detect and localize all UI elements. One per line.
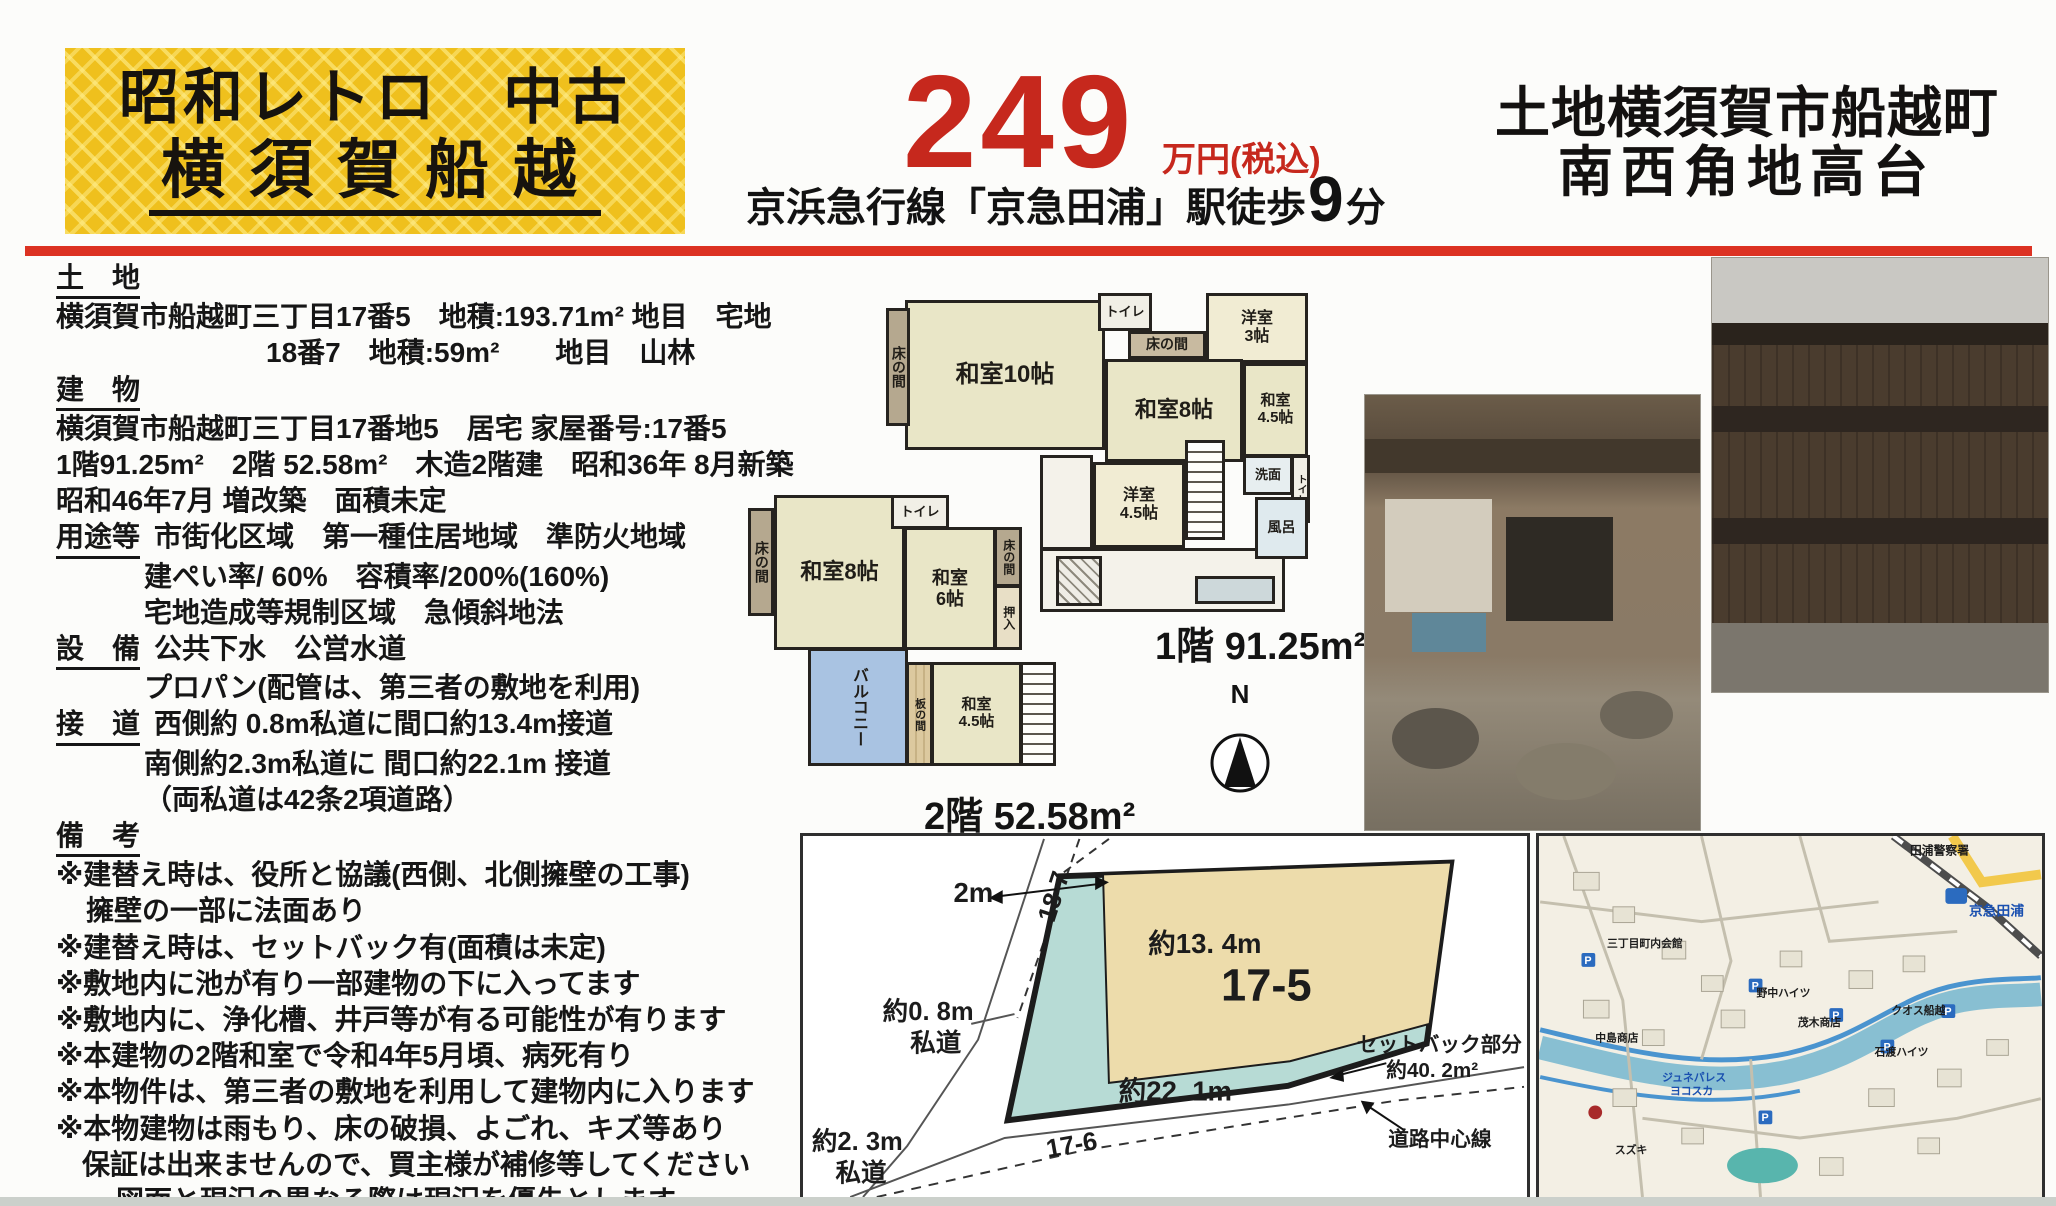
- detail-heading: 土 地: [56, 260, 140, 299]
- detail-text: （両私道は42条2項道路）: [144, 784, 471, 815]
- banner-line1: 昭和レトロ 中古: [119, 66, 631, 129]
- detail-line: ※本物建物は雨もり、床の破損、よごれ、キズ等あり: [56, 1111, 846, 1147]
- building: [1613, 1089, 1637, 1107]
- property-photo-exterior-garden: [1365, 395, 1700, 830]
- detail-text: 市街化区域 第一種住居地域 準防火地域: [154, 521, 686, 552]
- leader-line: [971, 1014, 1014, 1024]
- parking-p: P: [1752, 980, 1759, 992]
- parcel-boundary: [1064, 839, 1109, 872]
- room-washitsu-6: 和室 6帖: [904, 527, 996, 650]
- detail-text: プロパン(配管は、第三者の敷地を利用): [144, 672, 640, 703]
- access-minutes-unit: 分: [1346, 175, 1386, 233]
- poi-label: ジュネパレス: [1662, 1071, 1726, 1084]
- photo-rock: [1516, 743, 1617, 800]
- room-toilet: トイレ: [891, 495, 949, 529]
- detail-heading: 設 備: [56, 631, 140, 670]
- detail-text: ※敷地内に池が有り一部建物の下に入ってます: [56, 968, 640, 999]
- poi-label: 田浦警察署: [1910, 844, 1969, 858]
- room-kitchen-counter: [1195, 576, 1275, 604]
- station-marker: [1945, 888, 1967, 904]
- floor2-area-label: 2階 52.58m²: [924, 785, 1135, 840]
- detail-text: 擁壁の一部に法面あり: [86, 895, 366, 926]
- photo-wood-siding: [1712, 345, 2048, 623]
- west-road-width: 約0. 8m: [883, 997, 974, 1026]
- detail-heading: 用途等: [56, 519, 140, 558]
- parking-p: P: [1832, 1010, 1839, 1022]
- compass-north-label: N: [1205, 680, 1275, 708]
- detail-heading: 備 考: [56, 818, 140, 857]
- detail-line: 建ぺい率/ 60% 容積率/200%(160%): [56, 559, 846, 595]
- divider-rule: [25, 246, 2032, 256]
- detail-text: ※敷地内に、浄化槽、井戸等が有る可能性が有ります: [56, 1004, 726, 1035]
- room-yoshitsu-45: 洋室 4.5帖: [1093, 462, 1185, 548]
- west-road-label: 私道: [910, 1028, 962, 1057]
- area-map: 田浦警察署京急田浦三丁目町内会館野中ハイツ茂木商店クオス船越石渡ハイツ中島商店ジ…: [1536, 833, 2045, 1200]
- room-bath: 風呂: [1255, 497, 1308, 559]
- compass-icon: [1205, 708, 1275, 796]
- detail-text: 建ぺい率/ 60% 容積率/200%(160%): [144, 561, 609, 592]
- photo-balcony-band: [1712, 518, 2048, 544]
- detail-line: ※本建物の2階和室で令和4年5月頃、病死有り: [56, 1038, 846, 1074]
- south-road-label: 私道: [835, 1158, 887, 1187]
- title-banner: 昭和レトロ 中古 横須賀船越: [65, 48, 685, 234]
- photo-wall: [1385, 499, 1492, 612]
- detail-line: 1階91.25m² 2階 52.58m² 木造2階建 昭和36年 8月新築: [56, 447, 846, 483]
- detail-section-line: 建 物: [56, 372, 846, 411]
- detail-line: 18番7 地積:59m² 地目 山林: [56, 335, 846, 371]
- detail-text: ※建替え時は、セットバック有(面積は未定): [56, 932, 606, 963]
- detail-line: ※建替え時は、セットバック有(面積は未定): [56, 930, 846, 966]
- detail-heading: 建 物: [56, 372, 140, 411]
- location-headline: 土地横須賀市船越町 南西角地高台: [1462, 84, 2032, 202]
- building: [1613, 907, 1635, 923]
- building: [1642, 1030, 1664, 1046]
- building: [1869, 1089, 1895, 1107]
- poi-label: 中島商店: [1595, 1031, 1638, 1045]
- building: [1682, 1128, 1704, 1144]
- detail-line: ※敷地内に、浄化槽、井戸等が有る可能性が有ります: [56, 1002, 846, 1038]
- dim-south-frontage: 約22. 1m: [1119, 1076, 1232, 1107]
- flyer-page: 昭和レトロ 中古 横須賀船越 249 万円(税込) 京浜急行線「京急田浦」駅徒歩…: [0, 0, 2056, 1206]
- photo-entrance: [1506, 517, 1613, 621]
- map-svg: 田浦警察署京急田浦三丁目町内会館野中ハイツ茂木商店クオス船越石渡ハイツ中島商店ジ…: [1539, 836, 2042, 1197]
- parcel-17-5: 17-5: [1221, 959, 1312, 1010]
- room-tokonoma: 床の間: [1128, 331, 1206, 359]
- building: [1701, 976, 1723, 992]
- building: [1574, 872, 1600, 890]
- detail-text: ※本物建物は雨もり、床の破損、よごれ、キズ等あり: [56, 1113, 726, 1144]
- room-washitsu-8: 和室8帖: [1105, 359, 1243, 462]
- land-plot-diagram: 2m18-7約13. 4m17-5約0. 8m私道約22. 1mセットバック部分…: [800, 833, 1530, 1200]
- access-line-name: 京浜急行線「京急田浦」駅徒歩: [746, 175, 1306, 233]
- poi-label: 石渡ハイツ: [1874, 1044, 1929, 1058]
- headline-line1: 土地横須賀市船越町: [1462, 84, 2032, 143]
- building: [1918, 1138, 1940, 1154]
- detail-heading: 接 道: [56, 706, 140, 745]
- room-stairs: [1185, 440, 1225, 540]
- detail-line: 宅地造成等規制区域 急傾斜地法: [56, 595, 846, 631]
- detail-text: ※本建物の2階和室で令和4年5月頃、病死有り: [56, 1040, 634, 1071]
- detail-line: （両私道は42条2項道路）: [56, 782, 846, 818]
- room-genkan: [1056, 556, 1102, 606]
- parking-p: P: [1584, 955, 1591, 967]
- access-walk-minutes: 9: [1308, 162, 1344, 236]
- parking-p: P: [1883, 1041, 1890, 1053]
- building: [1903, 956, 1925, 972]
- photo-roofline: [1712, 323, 2048, 345]
- detail-text: 横須賀市船越町三丁目17番地5 居宅 家屋番号:17番5: [56, 413, 727, 444]
- building: [1721, 1010, 1745, 1028]
- detail-text: 西側約 0.8m私道に間口約13.4m接道: [154, 708, 613, 739]
- photo-rock: [1392, 708, 1479, 769]
- dim-west-frontage: 約13. 4m: [1148, 928, 1261, 959]
- station-access: 京浜急行線「京急田浦」駅徒歩 9 分: [746, 162, 1386, 236]
- photo-balcony-band: [1712, 406, 2048, 432]
- room-washitsu-45: 和室 4.5帖: [931, 662, 1022, 766]
- detail-section-line: 接 道西側約 0.8m私道に間口約13.4m接道: [56, 706, 846, 745]
- detail-line: 昭和46年7月 増改築 面積未定: [56, 483, 846, 519]
- detail-line: 擁壁の一部に法面あり: [56, 893, 846, 929]
- detail-line: 横須賀市船越町三丁目17番地5 居宅 家屋番号:17番5: [56, 411, 846, 447]
- room-toilet: トイレ: [1098, 293, 1152, 331]
- detail-text: 1階91.25m² 2階 52.58m² 木造2階建 昭和36年 8月新築: [56, 449, 794, 480]
- station-label: 京急田浦: [1969, 903, 2024, 919]
- room-yoshitsu-3: 洋室 3帖: [1206, 293, 1308, 363]
- banner-line2: 横須賀船越: [149, 135, 601, 215]
- building: [1987, 1040, 2009, 1056]
- room-tokonoma: 床の間: [886, 308, 910, 426]
- page-bottom-edge: [0, 1197, 2056, 1206]
- poi-label: 三丁目町内会館: [1607, 936, 1683, 950]
- detail-section-line: 用途等市街化区域 第一種住居地域 準防火地域: [56, 519, 846, 558]
- detail-text: 18番7 地積:59m² 地目 山林: [266, 337, 695, 368]
- detail-text: 保証は出来ませんので、買主様が補修等してください: [82, 1149, 750, 1180]
- setback-label: セットバック部分: [1357, 1032, 1522, 1056]
- detail-line: プロパン(配管は、第三者の敷地を利用): [56, 670, 846, 706]
- poi-label: ヨコスカ: [1670, 1085, 1713, 1098]
- property-location-marker: [1588, 1106, 1602, 1120]
- poi-label: スズキ: [1615, 1143, 1647, 1157]
- room-washroom: 洗面: [1243, 455, 1293, 495]
- floor1-area-label: 1階 91.25m²: [1155, 615, 1366, 670]
- parking-p: P: [1944, 1006, 1951, 1018]
- headline-line2: 南西角地高台: [1462, 143, 2032, 202]
- room-washitsu-10: 和室10帖: [905, 300, 1105, 450]
- photo-stone-wall: [1712, 623, 2048, 692]
- road-centerline-label: 道路中心線: [1388, 1127, 1492, 1151]
- detail-text: 宅地造成等規制区域 急傾斜地法: [144, 597, 564, 628]
- detail-line: ※本物件は、第三者の敷地を利用して建物内に入ります: [56, 1074, 846, 1110]
- parking-p: P: [1761, 1112, 1768, 1124]
- detail-section-line: 土 地: [56, 260, 846, 299]
- detail-text: 横須賀市船越町三丁目17番5 地積:193.71m² 地目 宅地: [56, 301, 772, 332]
- building: [1780, 951, 1802, 967]
- detail-line: 横須賀市船越町三丁目17番5 地積:193.71m² 地目 宅地: [56, 299, 846, 335]
- dim-2m: 2m: [954, 877, 994, 908]
- building: [1583, 1000, 1609, 1018]
- building: [1938, 1069, 1962, 1087]
- property-photo-building-corner: [1712, 258, 2048, 692]
- detail-text: 昭和46年7月 増改築 面積未定: [56, 485, 447, 516]
- room-itanoma: 板の間: [906, 662, 933, 766]
- centerline-arrow: [1369, 1107, 1404, 1131]
- room-hall: [1040, 455, 1093, 550]
- room-oshiire: 押入: [994, 585, 1022, 650]
- poi-label: クオス船越: [1891, 1003, 1945, 1017]
- room-stairs: [1020, 662, 1056, 766]
- detail-line: ※敷地内に池が有り一部建物の下に入ってます: [56, 966, 846, 1002]
- detail-text: ※建替え時は、役所と協議(西側、北側擁壁の工事): [56, 859, 690, 890]
- detail-text: ※本物件は、第三者の敷地を利用して建物内に入ります: [56, 1076, 754, 1107]
- detail-line: 南側約2.3m私道に 間口約22.1m 接道: [56, 746, 846, 782]
- property-details: 土 地横須賀市船越町三丁目17番5 地積:193.71m² 地目 宅地18番7 …: [56, 260, 846, 1206]
- photo-sky: [1712, 258, 2048, 332]
- detail-section-line: 備 考: [56, 818, 846, 857]
- room-tokonoma: 床の間: [994, 527, 1022, 587]
- building: [1820, 1158, 1844, 1176]
- arrowhead: [1361, 1101, 1375, 1115]
- compass: N: [1205, 680, 1275, 801]
- setback-area-value: 約40. 2m²: [1386, 1058, 1478, 1082]
- south-road-width: 約2. 3m: [812, 1127, 903, 1156]
- photo-roof: [1365, 439, 1700, 474]
- room-dk: [1040, 548, 1285, 612]
- room-washitsu-45: 和室 4.5帖: [1243, 363, 1308, 457]
- detail-text: 南側約2.3m私道に 間口約22.1m 接道: [144, 748, 611, 779]
- pool: [1727, 1148, 1798, 1183]
- poi-label: 野中ハイツ: [1757, 985, 1811, 999]
- photo-rock: [1600, 691, 1674, 739]
- building: [1849, 971, 1873, 989]
- detail-text: 公共下水 公営水道: [154, 633, 406, 664]
- detail-line: 保証は出来ませんので、買主様が補修等してください: [56, 1147, 846, 1183]
- photo-blue-tarp: [1412, 613, 1486, 652]
- plot-svg: 2m18-7約13. 4m17-5約0. 8m私道約22. 1mセットバック部分…: [803, 836, 1527, 1197]
- detail-section-line: 設 備公共下水 公営水道: [56, 631, 846, 670]
- detail-line: ※建替え時は、役所と協議(西側、北側擁壁の工事): [56, 857, 846, 893]
- room-toilet: トイレ: [1291, 455, 1310, 523]
